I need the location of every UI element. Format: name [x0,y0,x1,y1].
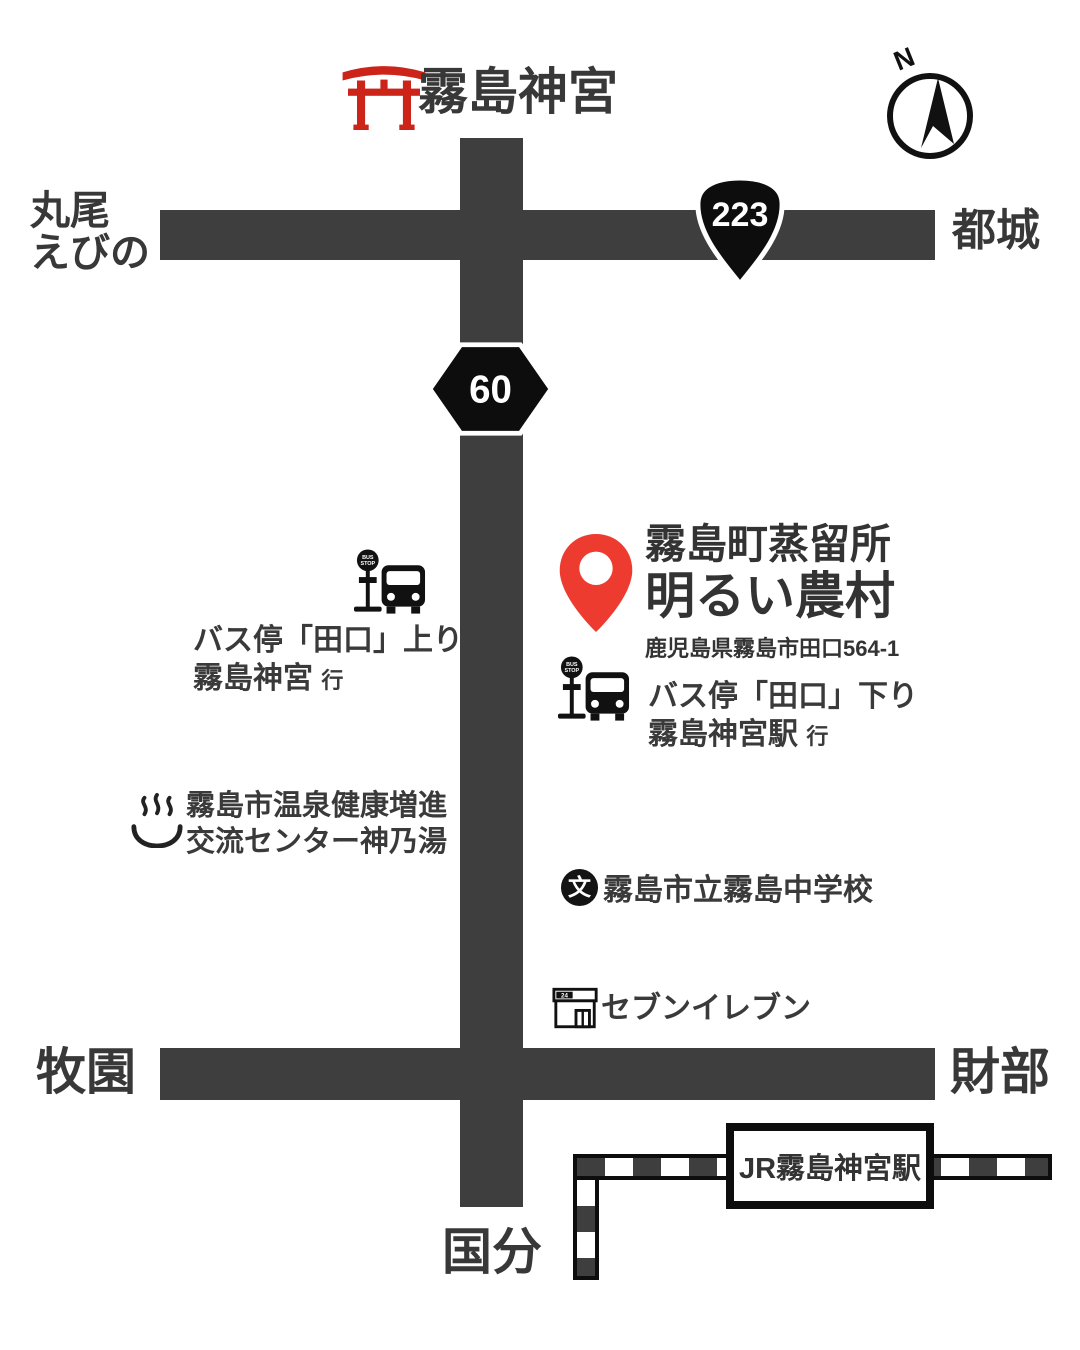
school-icon-glyph: 文 [568,876,591,899]
destination-block: 霧島町蒸留所 明るい農村 鹿児島県霧島市田口564-1 [645,524,899,663]
access-map: JR霧島神宮駅 霧島神宮 N 223 60 丸尾 えびの 都城 牧園 財部 国分 [0,0,1080,1350]
hot-spring-icon [130,790,184,848]
station-label: JR霧島神宮駅 [739,1145,921,1187]
compass-north-label: N [890,42,919,77]
onsen-label: 霧島市温泉健康増進 交流センター神乃湯 [186,788,447,861]
bus-sign-text-line2: STOP [360,561,375,567]
school-icon: 文 [561,869,598,906]
road-horizontal-top [160,210,935,260]
destination-address: 鹿児島県霧島市田口564-1 [645,631,899,663]
bus-stop-icon-1: BUS STOP [352,548,427,618]
destination-pin-icon [556,532,636,634]
bus-sign-text-line2: STOP [564,668,579,674]
torii-icon [338,58,430,130]
bus-sign-text-line1: BUS [566,662,578,668]
road-vertical [460,138,523,1207]
bus-sign-text-line1: BUS [362,555,374,561]
railway-vertical [573,1176,599,1280]
label-southwest: 牧園 [36,1046,136,1099]
bus-stop-icon-2: BUS STOP [556,655,631,725]
onsen-name-line2: 交流センター神乃湯 [186,824,447,860]
label-west-line1: 丸尾 [30,190,150,232]
route-60-number: 60 [469,368,512,411]
compass-icon: N [874,40,984,170]
bus-stop-1-direction: 霧島神宮 [193,662,313,695]
bus-stop-2-direction: 霧島神宮駅 [648,718,798,751]
store-label: セブンイレブン [601,990,811,1028]
route-223-badge: 223 [688,172,792,290]
bus-stop-2-label: バス停「田口」下り 霧島神宮駅 行 [648,678,918,753]
road-horizontal-bottom [160,1048,935,1100]
bus-stop-2-name: バス停「田口」下り [648,678,918,716]
bus-stop-1-label: バス停「田口」上り 霧島神宮 行 [193,622,463,697]
route-223-number: 223 [712,196,769,234]
label-south: 国分 [442,1226,542,1279]
station-label-box: JR霧島神宮駅 [726,1123,934,1209]
bus-stop-2-direction-suffix: 行 [806,724,828,749]
label-west-line2: えびの [30,232,150,274]
bus-stop-1-name: バス停「田口」上り [193,622,463,660]
bus-stop-1-direction-suffix: 行 [321,668,343,693]
destination-name-line2: 明るい農村 [645,571,899,621]
label-west: 丸尾 えびの [30,190,150,274]
convenience-store-icon: 24 [552,986,600,1031]
school-label: 霧島市立霧島中学校 [603,872,873,910]
route-60-badge: 60 [428,338,553,440]
page-title: 霧島神宮 [418,66,618,119]
destination-name-line1: 霧島町蒸留所 [645,524,899,565]
label-east: 都城 [952,208,1040,254]
label-southeast: 財部 [950,1046,1050,1099]
store-sign-text: 24 [561,992,568,999]
onsen-name-line1: 霧島市温泉健康増進 [186,788,447,824]
